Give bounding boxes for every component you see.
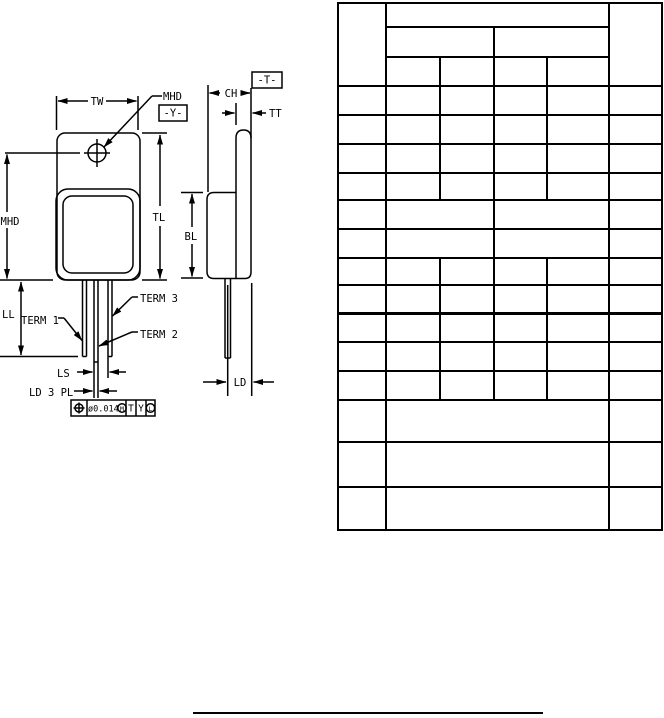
lead-side: [225, 279, 231, 397]
position-symbol-icon: [74, 403, 85, 414]
dim-label-tt: TT: [269, 108, 282, 120]
term3-label: TERM 3: [140, 293, 178, 305]
tab-outline: [57, 133, 140, 280]
table-grid-line: [546, 257, 548, 401]
lead-2: [94, 280, 98, 398]
hole-crosshair: [84, 139, 110, 167]
dim-label-ld3pl: LD 3 PL: [29, 387, 73, 399]
footer-rule: [193, 712, 543, 714]
front-view: [0, 96, 187, 398]
fcf-modifier: M: [120, 405, 124, 413]
table-grid-line: [439, 257, 441, 401]
fcf-datum-tertiary: L: [149, 405, 153, 413]
term1-label: TERM 1: [21, 315, 59, 327]
body-outline: [56, 189, 140, 280]
dim-label-ld: LD: [234, 377, 247, 389]
table-grid-line: [385, 26, 610, 28]
table-grid-line: [546, 56, 548, 201]
body-inner-outline: [63, 196, 133, 273]
fcf-tolerance: ø0.014: [88, 405, 119, 415]
table-grid-line: [385, 56, 610, 58]
datum-y-label: -Y-: [164, 108, 183, 120]
body-side-outline: [207, 193, 251, 279]
datasheet-page: TW MHD -Y- CH -T- TT TL BL MHD LL TERM 1…: [0, 0, 664, 718]
table-grid-line: [337, 2, 339, 531]
term2-label: TERM 2: [140, 329, 178, 341]
dim-label-bl: BL: [185, 231, 198, 243]
dim-label-ch: CH: [225, 88, 238, 100]
tab-dome: [236, 130, 251, 138]
table-grid-line: [661, 2, 663, 531]
dim-label-tw: TW: [91, 96, 104, 108]
dim-label-mhd: MHD: [1, 216, 20, 228]
table-grid-line: [608, 2, 610, 531]
lead-1: [83, 280, 87, 357]
fcf-datum-primary: T: [128, 404, 134, 415]
fcf-datum-secondary: Y: [138, 404, 144, 415]
table-grid-line: [493, 26, 495, 401]
dim-label-mhd-leader: MHD: [163, 91, 182, 103]
table-grid-line: [439, 56, 441, 201]
dim-label-tl: TL: [153, 212, 166, 224]
lead-3: [108, 280, 112, 378]
package-outline-drawing: TW MHD -Y- CH -T- TT TL BL MHD LL TERM 1…: [0, 0, 330, 430]
dim-label-ll: LL: [2, 309, 15, 321]
table-grid-line: [385, 2, 387, 531]
datum-t-label: -T-: [258, 75, 277, 87]
dimension-table: [338, 3, 662, 530]
dim-label-ls: LS: [57, 368, 70, 380]
